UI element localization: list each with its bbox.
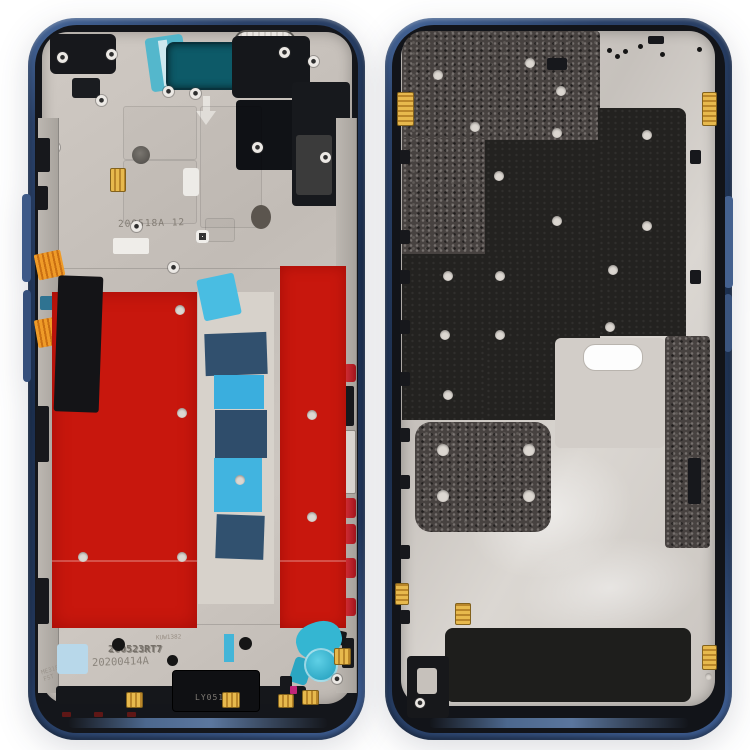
tape-strip-cyan xyxy=(214,458,262,512)
sticker-seam xyxy=(52,560,197,562)
bottom-shield-panel xyxy=(445,628,691,702)
frame-bottom-highlight xyxy=(429,718,689,728)
screw-recess xyxy=(623,49,628,54)
screw-hole xyxy=(307,410,317,420)
volume-button-outer-back xyxy=(724,196,733,288)
component-black xyxy=(547,58,567,70)
gold-contact xyxy=(222,692,240,708)
antenna-mark-red xyxy=(62,712,71,717)
edge-clip xyxy=(400,270,410,284)
component-black xyxy=(648,36,664,44)
screw-hole xyxy=(642,130,652,140)
edge-clip xyxy=(400,545,410,559)
gold-contact xyxy=(110,168,126,192)
loudspeaker-module: LY0514 xyxy=(172,670,260,712)
screw-hole xyxy=(415,698,425,708)
power-button-outer-back xyxy=(724,294,732,352)
adhesive-patch-speckled xyxy=(402,31,600,141)
antenna-contact-gold xyxy=(455,603,471,625)
screw-recess xyxy=(167,655,178,666)
screw-hole xyxy=(332,674,342,684)
rail-cutout xyxy=(36,578,49,624)
power-button-outer xyxy=(23,290,31,382)
screw-hole xyxy=(470,122,480,132)
screw-hole xyxy=(705,673,712,680)
antenna-mark-red xyxy=(127,712,136,717)
gold-contact xyxy=(302,690,319,705)
adhesive-pad-lightblue xyxy=(57,644,88,674)
screw-recess xyxy=(638,44,643,49)
back-midframe xyxy=(385,18,732,740)
tape-strip-navy xyxy=(215,514,265,560)
edge-clip xyxy=(400,475,410,489)
flex-ribbon-black xyxy=(54,275,104,412)
antenna-contact-gold xyxy=(702,92,717,126)
screw-recess xyxy=(697,47,702,52)
screw-recess xyxy=(112,638,125,651)
mount-peg xyxy=(196,230,209,243)
adhesive-patch-speckled xyxy=(665,336,710,548)
volume-button-outer xyxy=(22,194,31,282)
tape-tab-cyan xyxy=(224,634,234,662)
screw-hole xyxy=(443,390,453,400)
adhesive-patch-speckled xyxy=(415,422,551,532)
screw-hole xyxy=(252,142,263,153)
screw-hole xyxy=(190,88,201,99)
tape-strip-navy xyxy=(215,410,267,458)
blank-label xyxy=(113,238,149,254)
screw-hole xyxy=(523,490,535,502)
etch-code-text: 20200414A xyxy=(92,655,149,669)
fingerprint-window-cutout xyxy=(583,344,643,371)
screw-hole xyxy=(57,52,68,63)
screw-recess xyxy=(660,52,665,57)
adhesive-patch-speckled xyxy=(402,138,486,254)
rail-cutout xyxy=(36,406,49,462)
edge-clip xyxy=(400,610,410,624)
screw-hole xyxy=(175,305,185,315)
antenna-contact-gold xyxy=(397,92,414,126)
screw-recess xyxy=(239,637,252,650)
screw-hole xyxy=(433,70,443,80)
antenna-mark-red xyxy=(94,712,103,717)
screw-hole xyxy=(163,86,174,97)
etch-small-text: KUW1382 xyxy=(156,634,182,642)
screw-recess xyxy=(615,54,620,59)
edge-clip xyxy=(688,458,701,504)
screw-hole xyxy=(307,512,317,522)
edge-clip xyxy=(400,230,410,244)
product-photo-canvas: 200518A 12 xyxy=(0,0,750,750)
screw-hole xyxy=(605,322,615,332)
foam-pad xyxy=(296,135,332,195)
screw-hole xyxy=(235,475,245,485)
screw-hole xyxy=(523,444,535,456)
edge-clip xyxy=(400,372,410,386)
grommet xyxy=(251,205,271,229)
mount-peg xyxy=(183,168,199,196)
edge-clip xyxy=(400,150,410,164)
gold-contact xyxy=(278,694,294,708)
screw-hole xyxy=(494,171,504,181)
screw-hole xyxy=(495,330,505,340)
screw-hole xyxy=(642,221,652,231)
screw-hole xyxy=(525,58,535,68)
antenna-contact-gold xyxy=(395,583,409,605)
gold-contact xyxy=(126,692,143,708)
screw-hole xyxy=(437,490,449,502)
screw-recess xyxy=(607,48,612,53)
screw-hole xyxy=(168,262,179,273)
screw-hole xyxy=(177,408,187,418)
screw-hole xyxy=(320,152,331,163)
edge-clip xyxy=(690,150,701,164)
screw-hole xyxy=(552,128,562,138)
screw-hole xyxy=(495,271,505,281)
front-midframe: 200518A 12 xyxy=(28,18,365,740)
screw-hole xyxy=(440,330,450,340)
gold-contact xyxy=(334,648,351,665)
board-code-text: 200518A 12 xyxy=(118,217,185,230)
rail-cutout xyxy=(36,186,48,210)
sensor-cutout xyxy=(72,78,100,98)
antenna-contact-gold xyxy=(702,645,717,670)
screw-hole xyxy=(78,552,88,562)
sticker-seam xyxy=(280,560,346,562)
etched-outline xyxy=(205,218,235,242)
screw-hole xyxy=(556,86,566,96)
tape-strip-cyan xyxy=(214,375,264,409)
corner-bracket-inner xyxy=(417,668,437,694)
screw-hole xyxy=(443,271,453,281)
adhesive-sticker-red-right xyxy=(280,266,346,628)
screw-hole xyxy=(437,444,449,456)
large-screw-hole xyxy=(132,146,150,164)
edge-clip xyxy=(400,320,410,334)
screw-hole xyxy=(552,216,562,226)
screw-hole xyxy=(608,265,618,275)
screw-hole xyxy=(177,552,187,562)
screw-hole xyxy=(279,47,290,58)
tape-strip-navy xyxy=(204,332,267,376)
edge-clip xyxy=(400,428,410,442)
screw-hole xyxy=(106,49,117,60)
graphite-panel xyxy=(485,340,556,420)
component-magenta xyxy=(290,686,297,694)
screw-hole xyxy=(96,95,107,106)
frame-bottom-highlight xyxy=(68,718,328,728)
edge-clip xyxy=(690,270,701,284)
rail-cutout xyxy=(36,138,50,172)
screw-hole xyxy=(131,221,142,232)
screw-hole xyxy=(308,56,319,67)
